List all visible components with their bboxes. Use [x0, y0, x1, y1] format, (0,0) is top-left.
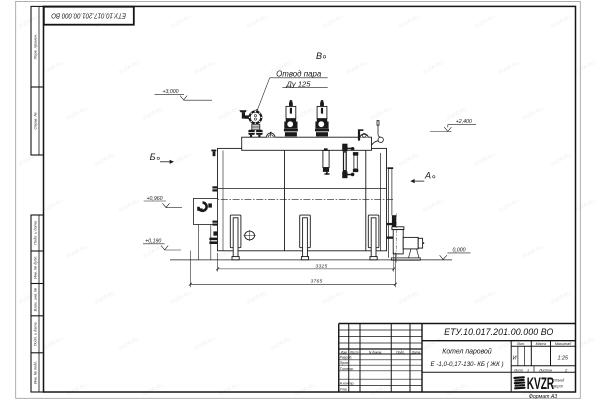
svg-text:KVZR.RU: KVZR.RU: [322, 14, 345, 30]
svg-text:KVZR.RU: KVZR.RU: [398, 290, 421, 306]
svg-text:Б: Б: [150, 152, 156, 162]
svg-text:KVZR.RU: KVZR.RU: [94, 290, 117, 306]
svg-text:KVZR.RU: KVZR.RU: [498, 198, 521, 214]
svg-text:3325: 3325: [315, 263, 327, 269]
svg-text:KVZR.RU: KVZR.RU: [474, 290, 497, 306]
svg-text:KVZR.RU: KVZR.RU: [346, 60, 369, 76]
svg-text:KVZR.RU: KVZR.RU: [398, 152, 421, 168]
svg-text:KVZR.RU: KVZR.RU: [94, 152, 117, 168]
svg-text:3765: 3765: [310, 279, 322, 285]
svg-text:+0,960: +0,960: [146, 196, 162, 202]
svg-text:Лист: Лист: [513, 369, 523, 373]
svg-text:ЕТУ.10.017.201.00.000 ВО: ЕТУ.10.017.201.00.000 ВО: [51, 11, 126, 18]
svg-text:KVZR.RU: KVZR.RU: [422, 336, 445, 352]
svg-text:KVZR.RU: KVZR.RU: [370, 106, 393, 122]
svg-text:KVZR: KVZR: [527, 375, 555, 393]
svg-text:KVZR.RU: KVZR.RU: [170, 290, 193, 306]
svg-text:Справ. №: Справ. №: [33, 112, 37, 129]
svg-text:Разраб.: Разраб.: [340, 356, 353, 360]
svg-text:И: И: [513, 356, 517, 362]
svg-text:KVZR.RU: KVZR.RU: [170, 14, 193, 30]
svg-text:KVZR.RU: KVZR.RU: [422, 198, 445, 214]
svg-text:KVZR.RU: KVZR.RU: [66, 106, 89, 122]
svg-text:KVZR.RU: KVZR.RU: [142, 382, 165, 398]
svg-text:А: А: [424, 171, 431, 181]
svg-text:KVZR.RU: KVZR.RU: [422, 60, 445, 76]
svg-text:Масса: Масса: [536, 342, 546, 346]
svg-text:Котел паровой: Котел паровой: [442, 347, 492, 355]
svg-text:Взам. инв. №: Взам. инв. №: [33, 288, 37, 311]
svg-text:Подп.: Подп.: [396, 350, 405, 354]
svg-text:Ду 125: Ду 125: [285, 79, 311, 88]
svg-text:1: 1: [527, 369, 529, 373]
svg-text:KVZR.RU: KVZR.RU: [446, 382, 469, 398]
svg-text:Пров.: Пров.: [340, 361, 349, 365]
svg-text:Лист: Лист: [349, 350, 359, 354]
svg-text:KVZR.RU: KVZR.RU: [18, 152, 41, 168]
svg-text:Т.контр.: Т.контр.: [340, 367, 354, 371]
svg-text:KVZR.RU: KVZR.RU: [42, 198, 65, 214]
svg-text:0,000: 0,000: [453, 248, 466, 254]
svg-text:KVZR.RU: KVZR.RU: [474, 14, 497, 30]
svg-text:KVZR.RU: KVZR.RU: [246, 290, 269, 306]
svg-text:KVZR.RU: KVZR.RU: [294, 106, 317, 122]
svg-text:Отвод пара: Отвод пара: [276, 69, 322, 78]
svg-text:KVZR.RU: KVZR.RU: [218, 382, 241, 398]
svg-text:Листов: Листов: [538, 369, 552, 373]
svg-text:+3,000: +3,000: [162, 89, 178, 95]
svg-text:1:25: 1:25: [558, 356, 569, 362]
svg-text:Масштаб: Масштаб: [555, 342, 572, 346]
svg-text:KVZR.RU: KVZR.RU: [142, 106, 165, 122]
svg-text:Утв.: Утв.: [340, 388, 348, 392]
svg-text:KVZR.RU: KVZR.RU: [550, 152, 573, 168]
svg-text:Подп. и дата: Подп. и дата: [33, 221, 37, 245]
svg-text:В: В: [316, 51, 322, 61]
svg-text:KVZR.RU: KVZR.RU: [118, 336, 141, 352]
svg-text:KVZR.RU: KVZR.RU: [170, 152, 193, 168]
svg-text:Е -1,0-0,17-130- КБ ( ЖК ): Е -1,0-0,17-130- КБ ( ЖК ): [430, 361, 503, 368]
svg-text:KVZR.RU: KVZR.RU: [474, 152, 497, 168]
svg-text:+0,190: +0,190: [145, 239, 161, 245]
svg-text:KVZR.RU: KVZR.RU: [194, 336, 217, 352]
svg-text:KVZR.RU: KVZR.RU: [294, 382, 317, 398]
svg-text:KVZR.RU: KVZR.RU: [118, 60, 141, 76]
svg-text:N докум.: N докум.: [369, 350, 382, 354]
svg-text:ЗАВОД РЭП: ЗАВОД РЭП: [552, 384, 564, 389]
svg-text:KVZR.RU: KVZR.RU: [218, 106, 241, 122]
svg-text:Инв. № дубл.: Инв. № дубл.: [33, 256, 37, 279]
svg-text:KVZR.RU: KVZR.RU: [246, 14, 269, 30]
svg-text:KVZR.RU: KVZR.RU: [42, 336, 65, 352]
svg-text:KVZR.RU: KVZR.RU: [574, 336, 597, 352]
svg-text:KVZR.RU: KVZR.RU: [522, 106, 545, 122]
svg-text:KVZR.RU: KVZR.RU: [42, 60, 65, 76]
svg-text:КОТЕЛЬНЫЙ: КОТЕЛЬНЫЙ: [552, 378, 565, 383]
svg-text:Формат А3: Формат А3: [529, 394, 557, 400]
svg-text:KVZR.RU: KVZR.RU: [270, 336, 293, 352]
svg-text:KVZR.RU: KVZR.RU: [398, 14, 421, 30]
svg-text:Лит.: Лит.: [516, 342, 525, 346]
svg-text:KVZR.RU: KVZR.RU: [574, 60, 597, 76]
svg-text:KVZR.RU: KVZR.RU: [118, 198, 141, 214]
svg-text:KVZR.RU: KVZR.RU: [194, 60, 217, 76]
svg-text:KVZR.RU: KVZR.RU: [322, 290, 345, 306]
svg-text:KVZR.RU: KVZR.RU: [66, 382, 89, 398]
svg-text:Изм: Изм: [341, 350, 348, 354]
svg-text:KVZR.RU: KVZR.RU: [574, 198, 597, 214]
svg-text:KVZR.RU: KVZR.RU: [370, 382, 393, 398]
svg-text:Инв. № подл.: Инв. № подл.: [33, 361, 37, 385]
svg-text:+2,400: +2,400: [456, 119, 472, 125]
svg-text:Перв. примен.: Перв. примен.: [33, 34, 37, 59]
svg-text:Н.контр.: Н.контр.: [340, 381, 355, 385]
svg-text:ЕТУ.10.017.201.00.000 ВО: ЕТУ.10.017.201.00.000 ВО: [444, 327, 553, 337]
svg-text:Дата: Дата: [411, 350, 421, 354]
svg-text:Подп. и дата: Подп. и дата: [33, 322, 37, 346]
svg-text:KVZR.RU: KVZR.RU: [550, 14, 573, 30]
svg-text:KVZR.RU: KVZR.RU: [498, 60, 521, 76]
svg-text:KVZR.RU: KVZR.RU: [522, 244, 545, 260]
svg-text:KVZR.RU: KVZR.RU: [66, 244, 89, 260]
svg-text:KVZR.RU: KVZR.RU: [18, 14, 41, 30]
svg-text:KVZR.RU: KVZR.RU: [550, 290, 573, 306]
